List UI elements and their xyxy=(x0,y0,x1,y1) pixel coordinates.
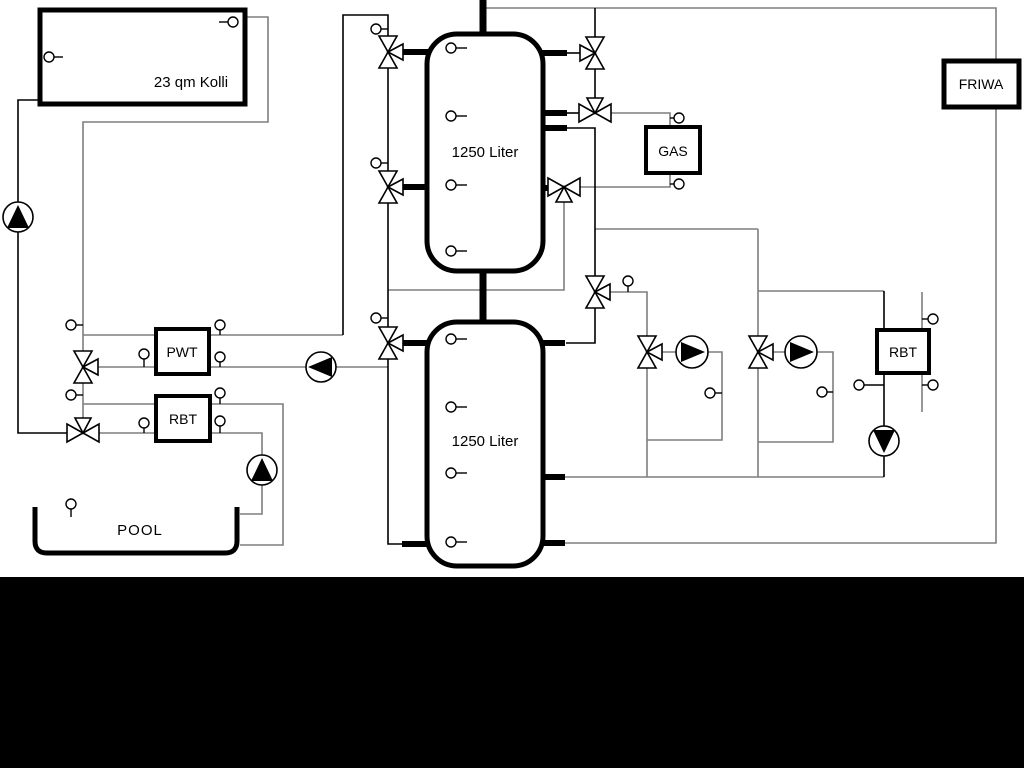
temp-sensor xyxy=(922,380,938,390)
temp-sensor xyxy=(66,320,83,330)
pipe-gas-supply xyxy=(610,113,670,127)
valve-circuit1-mixer xyxy=(638,336,662,368)
temp-sensor xyxy=(66,499,76,517)
valve-solar-pwt xyxy=(74,351,98,383)
valve-tank1-top-left xyxy=(379,36,403,68)
temp-sensor xyxy=(66,390,83,400)
pwt-label: PWT xyxy=(166,344,198,360)
temp-sensor xyxy=(139,418,149,433)
temp-sensor xyxy=(670,179,684,189)
tank-top-label: 1250 Liter xyxy=(452,144,519,161)
valve-tank2-top-left xyxy=(379,327,403,359)
valve-gas-return xyxy=(548,178,580,202)
pipe-top-rail-friwa xyxy=(483,8,996,543)
valve-circuit2-mixer xyxy=(749,336,773,368)
pump-rbt-right xyxy=(869,426,899,456)
valve-solar-rbt xyxy=(67,418,99,442)
temp-sensor xyxy=(705,388,722,398)
pipe-valve4-branch xyxy=(610,292,647,337)
valve-gas-supply xyxy=(579,98,611,122)
pipe-tank1-right-column xyxy=(566,128,595,343)
hydraulic-schematic: 23 qm Kolli 1250 Liter 1250 Liter PWT RB… xyxy=(0,0,1024,768)
valve-heating-mixer xyxy=(586,276,610,308)
temp-sensor xyxy=(670,113,684,123)
collector-label: 23 qm Kolli xyxy=(154,74,228,91)
temp-sensor xyxy=(371,24,388,34)
gas-label: GAS xyxy=(658,143,688,159)
pipe-solar-line xyxy=(18,100,67,433)
temp-sensor xyxy=(215,320,225,335)
temp-sensor xyxy=(139,349,149,367)
friwa-label: FRIWA xyxy=(959,76,1004,92)
temp-sensor xyxy=(854,380,884,390)
schematic-canvas: 23 qm Kolli 1250 Liter 1250 Liter PWT RB… xyxy=(0,0,1024,768)
temp-sensor xyxy=(371,313,388,323)
temp-sensor xyxy=(922,314,938,324)
temp-sensor xyxy=(215,388,225,404)
pool-label: POOL xyxy=(117,522,163,539)
temp-sensor xyxy=(817,387,833,397)
tank-bottom-label: 1250 Liter xyxy=(452,433,519,450)
valve-tank1-top-right xyxy=(580,37,604,69)
temp-sensor xyxy=(623,276,633,292)
temp-sensor xyxy=(215,352,225,367)
pump-circuit2 xyxy=(785,336,817,368)
bottom-black-bar xyxy=(0,577,1024,768)
valve-tank1-mid-left xyxy=(379,171,403,203)
pump-pwt xyxy=(306,352,336,382)
pipe-tank-left-column xyxy=(343,15,420,544)
temp-sensor xyxy=(215,416,225,433)
pump-pool xyxy=(247,455,277,485)
rbt-right-label: RBT xyxy=(889,344,917,360)
pipe-gas-return xyxy=(578,173,670,187)
pump-circuit1 xyxy=(676,336,708,368)
rbt-left-label: RBT xyxy=(169,411,197,427)
pump-solar xyxy=(3,202,33,232)
temp-sensor xyxy=(371,158,388,168)
